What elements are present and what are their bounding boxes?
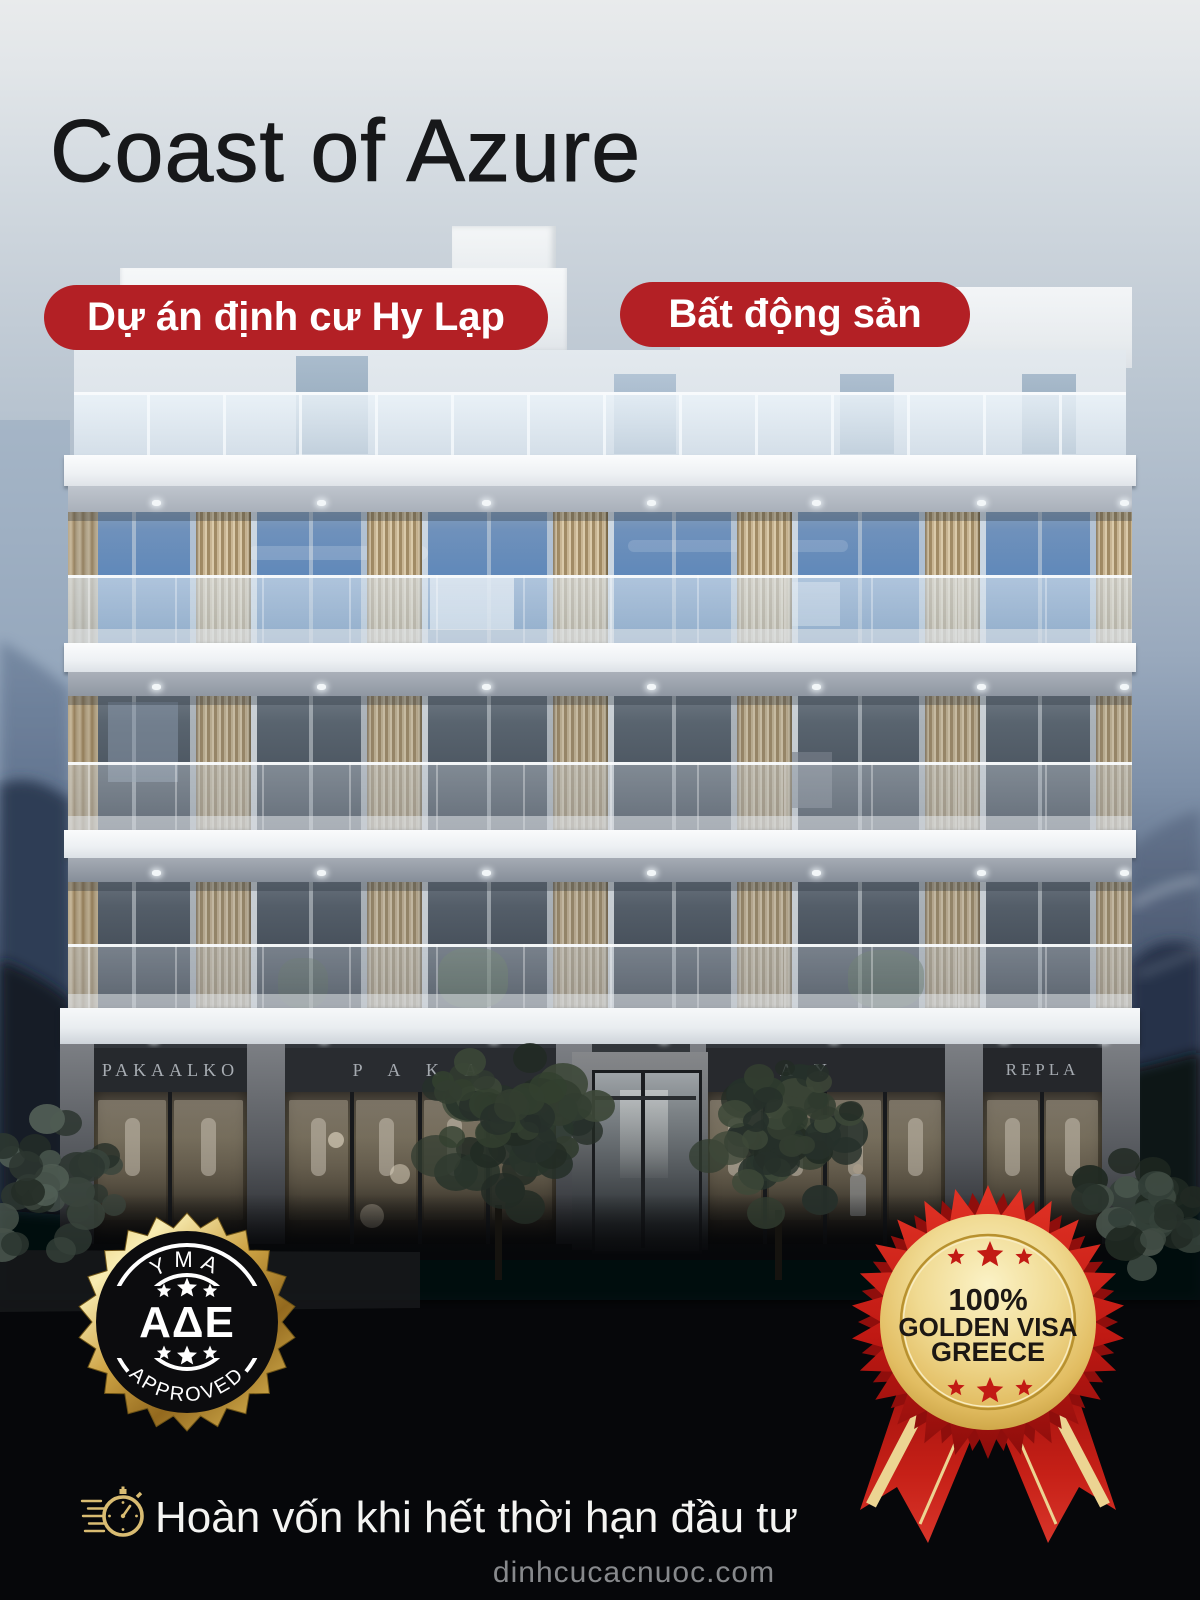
svg-text:GREECE: GREECE xyxy=(931,1337,1045,1367)
svg-text:ΑΔΕ: ΑΔΕ xyxy=(139,1298,235,1347)
